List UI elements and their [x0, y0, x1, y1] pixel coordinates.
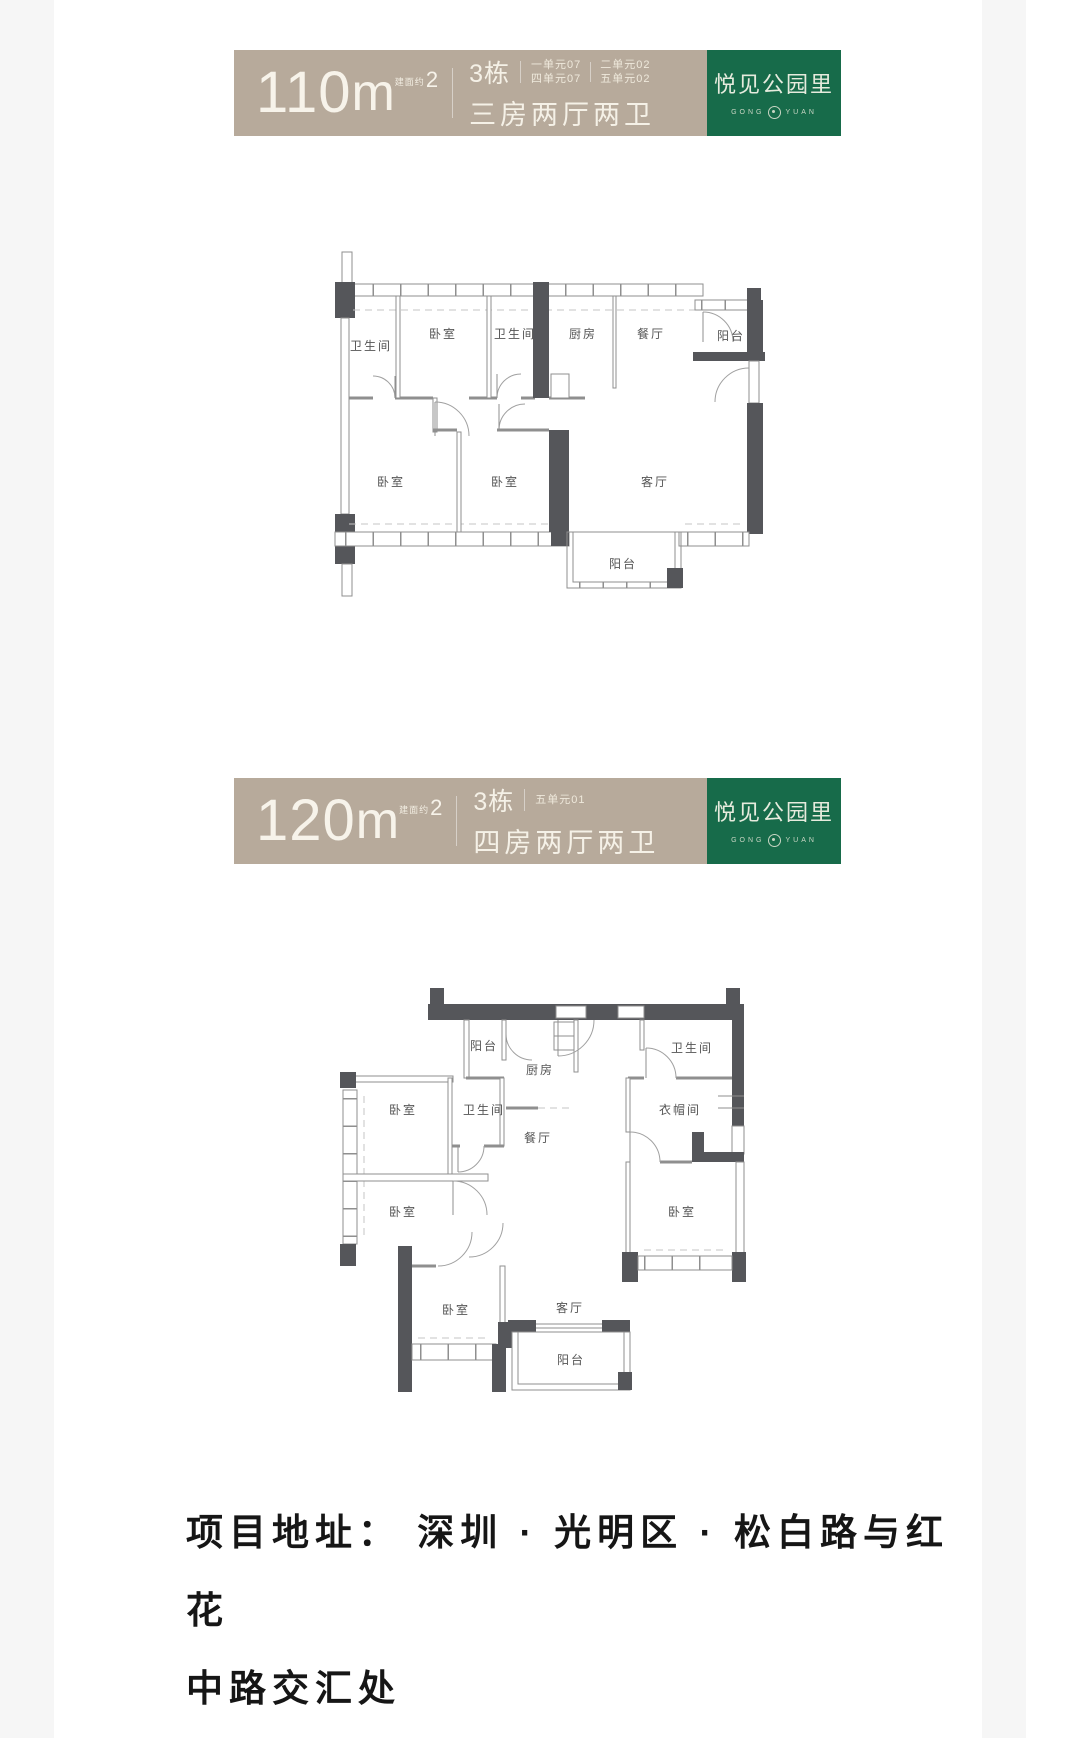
brand-name: 悦见公园里 — [714, 795, 834, 827]
room-label: 客厅 — [641, 474, 669, 489]
room-label: 卧室 — [442, 1302, 470, 1317]
floorplan-120-svg: 阳台 厨房 卫生间 卧室 卫生间 餐厅 衣帽间 卧室 卧室 卧室 客厅 阳台 — [288, 878, 788, 1400]
area-120: 120m建面约2 — [256, 778, 442, 864]
building-label: 3栋 — [469, 54, 510, 90]
unit-label: 五单元02 — [600, 72, 650, 86]
right-gutter — [982, 0, 1026, 1738]
room-label: 卫生间 — [494, 327, 536, 341]
divider — [520, 61, 521, 83]
building-label: 3栋 — [473, 782, 514, 818]
layout-name: 三房两厅两卫 — [469, 93, 655, 132]
room-label: 阳台 — [717, 328, 745, 343]
brand-logo: 悦见公园里 GONG YUAN — [707, 778, 841, 864]
room-label: 阳台 — [470, 1038, 498, 1053]
floorplan-120: 阳台 厨房 卫生间 卧室 卫生间 餐厅 衣帽间 卧室 卧室 卧室 客厅 阳台 — [288, 878, 788, 1400]
area-unit: m — [356, 778, 399, 864]
project-address: 项目地址： 深圳 · 光明区 · 松白路与红花 中路交汇处 — [186, 1494, 966, 1728]
floorplan-110: 卫生间 卧室 卫生间 厨房 餐厅 阳台 卧室 卧室 客厅 阳台 — [283, 216, 783, 618]
logo-seal-icon — [768, 106, 781, 119]
area-prefix: 建面约 — [395, 75, 425, 88]
area-unit: m — [351, 50, 394, 136]
address-line-2: 中路交汇处 — [186, 1650, 966, 1728]
room-label: 卫生间 — [463, 1103, 505, 1117]
room-label: 阳台 — [609, 556, 637, 571]
room-label: 卧室 — [491, 474, 519, 489]
area-value: 110 — [256, 50, 351, 136]
room-label: 餐厅 — [637, 326, 665, 341]
area-110: 110m建面约2 — [256, 50, 438, 136]
room-label: 卫生间 — [350, 339, 392, 353]
logo-seal-icon — [768, 834, 781, 847]
area-superscript: 2 — [426, 67, 438, 93]
area-superscript: 2 — [430, 795, 442, 821]
divider — [452, 68, 453, 118]
layout-name: 四房两厅两卫 — [473, 821, 659, 860]
banner-110-info: 110m建面约2 3栋 一单元07 四单元07 二单元02 — [234, 50, 707, 136]
promo-page: 110m建面约2 3栋 一单元07 四单元07 二单元02 — [0, 0, 1080, 1738]
floorplan-110-svg: 卫生间 卧室 卫生间 厨房 餐厅 阳台 卧室 卧室 客厅 阳台 — [283, 216, 783, 618]
brand-sub-left: GONG — [731, 109, 764, 116]
brand-sub-right: YUAN — [785, 837, 816, 844]
unit-label: 五单元01 — [535, 793, 585, 807]
divider — [524, 789, 525, 811]
banner-120-info: 120m建面约2 3栋 五单元01 四房两厅两卫 — [234, 778, 707, 864]
brand-logo: 悦见公园里 GONG YUAN — [707, 50, 841, 136]
area-prefix: 建面约 — [399, 803, 429, 816]
room-label: 卧室 — [668, 1204, 696, 1219]
area-value: 120 — [256, 778, 356, 864]
address-line-1: 项目地址： 深圳 · 光明区 · 松白路与红花 — [186, 1494, 966, 1650]
room-label: 卧室 — [389, 1204, 417, 1219]
room-label: 卧室 — [377, 474, 405, 489]
room-label: 阳台 — [557, 1352, 585, 1367]
room-label: 卧室 — [389, 1102, 417, 1117]
divider — [456, 796, 457, 846]
room-label: 卧室 — [429, 326, 457, 341]
divider — [590, 62, 591, 82]
room-label: 客厅 — [556, 1300, 584, 1315]
unit-label: 一单元07 — [531, 58, 581, 72]
banner-110-details: 3栋 一单元07 四单元07 二单元02 五单元02 三房 — [469, 54, 655, 132]
left-gutter — [0, 0, 54, 1738]
room-label: 卫生间 — [671, 1041, 713, 1055]
unit-label: 四单元07 — [531, 72, 581, 86]
room-label: 厨房 — [569, 326, 597, 341]
banner-120-details: 3栋 五单元01 四房两厅两卫 — [473, 782, 659, 860]
brand-sub-right: YUAN — [785, 109, 816, 116]
brand-sub-left: GONG — [731, 837, 764, 844]
banner-120: 120m建面约2 3栋 五单元01 四房两厅两卫 悦见公园里 G — [234, 778, 841, 864]
brand-name: 悦见公园里 — [714, 67, 834, 99]
banner-110: 110m建面约2 3栋 一单元07 四单元07 二单元02 — [234, 50, 841, 136]
room-label: 厨房 — [526, 1062, 554, 1077]
room-label: 衣帽间 — [659, 1102, 701, 1117]
room-label: 餐厅 — [524, 1130, 552, 1145]
unit-label: 二单元02 — [600, 58, 650, 72]
